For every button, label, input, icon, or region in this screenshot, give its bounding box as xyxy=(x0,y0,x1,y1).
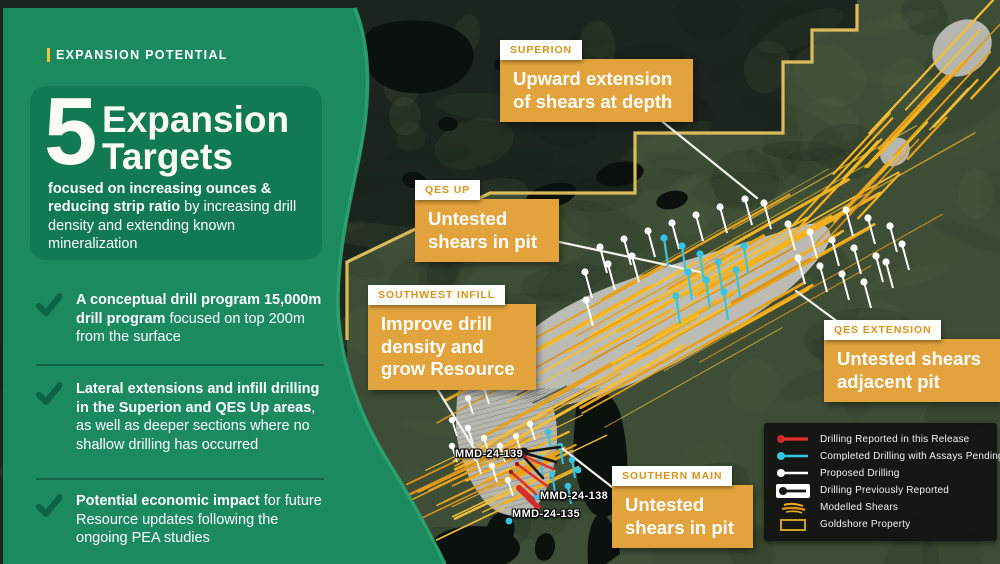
bullet-text: Potential economic impact for future Res… xyxy=(76,492,332,548)
legend-row-property: Goldshore Property xyxy=(774,518,987,532)
check-icon xyxy=(36,291,62,347)
legend-row-reported: Drilling Reported in this Release xyxy=(774,432,987,446)
callout-tab: QES UP xyxy=(415,180,480,200)
headline-subtitle: focused on increasing ounces & reducing … xyxy=(48,180,310,253)
bullet-lateral-extensions: Lateral extensions and infill drilling i… xyxy=(36,380,332,454)
callout-body: Upward extension of shears at depth xyxy=(500,59,693,122)
divider xyxy=(36,364,324,366)
drill-label-mmd-24-139: MMD-24-139 xyxy=(455,448,523,460)
legend-row-previous: Drilling Previously Reported xyxy=(774,484,987,498)
divider xyxy=(36,478,324,480)
check-icon xyxy=(36,492,62,548)
legend-row-assays-pending: Completed Drilling with Assays Pending xyxy=(774,449,987,463)
callout-southwest-infill: SOUTHWEST INFILL Improve drill density a… xyxy=(368,285,536,390)
callout-body: Improve drill density and grow Resource xyxy=(368,304,536,390)
previous-drilling-icon xyxy=(774,484,812,498)
callout-tab: SOUTHERN MAIN xyxy=(612,466,732,486)
headline-line2: Targets xyxy=(102,136,233,178)
headline-line1: Expansion xyxy=(102,99,289,141)
callout-body: Untested shears in pit xyxy=(612,485,753,548)
modelled-shears-icon xyxy=(774,501,812,515)
reported-drilling-icon xyxy=(774,432,812,446)
eyebrow: EXPANSION POTENTIAL xyxy=(47,48,228,62)
slide: EXPANSION POTENTIAL 5 Expansion Targets … xyxy=(0,0,1000,564)
headline-number: 5 xyxy=(44,84,95,180)
bullet-text: Lateral extensions and infill drilling i… xyxy=(76,380,332,454)
callout-qes-extension: QES EXTENSION Untested shears adjacent p… xyxy=(824,320,1000,402)
callout-body: Untested shears in pit xyxy=(415,199,559,262)
bullet-text: A conceptual drill program 15,000m drill… xyxy=(76,291,332,347)
drill-label-mmd-24-135: MMD-24-135 xyxy=(512,508,580,520)
callout-tab: SUPERION xyxy=(500,40,582,60)
drill-label-mmd-24-138: MMD-24-138 xyxy=(540,490,608,502)
legend-row-shears: Modelled Shears xyxy=(774,501,987,515)
callout-southern-main: SOUTHERN MAIN Untested shears in pit xyxy=(612,466,753,548)
eyebrow-accent-bar xyxy=(47,48,50,62)
goldshore-property-icon xyxy=(774,518,812,532)
check-icon xyxy=(36,380,62,454)
legend-row-proposed: Proposed Drilling xyxy=(774,466,987,480)
callout-superion: SUPERION Upward extension of shears at d… xyxy=(500,40,693,122)
callout-tab: SOUTHWEST INFILL xyxy=(368,285,505,305)
bullet-drill-program: A conceptual drill program 15,000m drill… xyxy=(36,291,332,347)
proposed-drilling-icon xyxy=(774,466,812,480)
eyebrow-label: EXPANSION POTENTIAL xyxy=(56,48,228,62)
assays-pending-icon xyxy=(774,449,812,463)
callout-tab: QES EXTENSION xyxy=(824,320,941,340)
callout-body: Untested shears adjacent pit xyxy=(824,339,1000,402)
bullet-economic-impact: Potential economic impact for future Res… xyxy=(36,492,332,548)
callout-qes-up: QES UP Untested shears in pit xyxy=(415,180,559,262)
map-legend: Drilling Reported in this Release Comple… xyxy=(764,423,997,541)
